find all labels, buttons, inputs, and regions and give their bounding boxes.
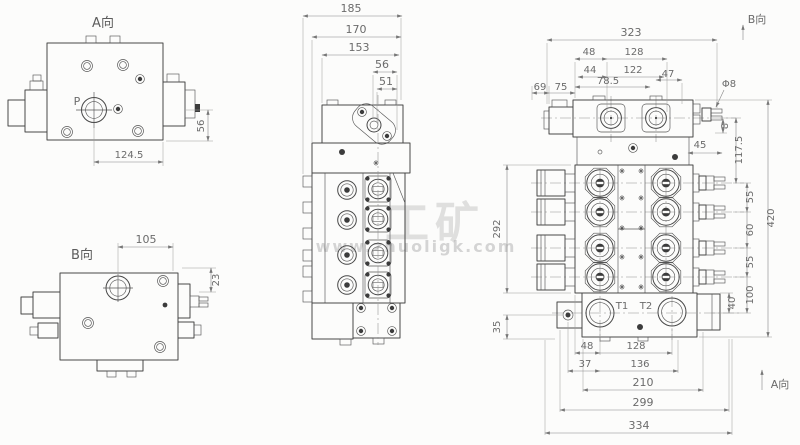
dim: 75 bbox=[555, 82, 568, 93]
dim: 292 bbox=[492, 219, 503, 238]
port-p-label: P bbox=[74, 95, 81, 108]
dim: 153 bbox=[349, 41, 370, 54]
dim: 128 bbox=[624, 47, 643, 58]
dim: 40 bbox=[727, 297, 738, 310]
dim: 420 bbox=[766, 208, 777, 227]
dim: 122 bbox=[623, 65, 642, 76]
dim: 78.5 bbox=[597, 76, 619, 87]
view-front: T1 T2 323 48 128 44 122 69 75 78.5 47 Φ8… bbox=[492, 12, 789, 435]
dim: 47 bbox=[662, 69, 675, 80]
dim: 56 bbox=[196, 120, 207, 133]
port-hole bbox=[114, 105, 123, 114]
dim: 100 bbox=[745, 285, 756, 304]
dim: 334 bbox=[629, 419, 650, 432]
dim: 170 bbox=[346, 23, 367, 36]
valve-drawing-page: 工矿 www.zhuoligk.com A向 P 124.5 56 B向 bbox=[0, 0, 800, 445]
dim: 60 bbox=[745, 224, 756, 237]
port-hole bbox=[82, 61, 93, 72]
watermark: 工矿 www.zhuoligk.com bbox=[316, 198, 517, 256]
dim: 210 bbox=[633, 376, 654, 389]
dim: 8 bbox=[720, 123, 731, 129]
view-b-label: B向 bbox=[71, 247, 93, 263]
dim: 299 bbox=[633, 396, 654, 409]
dim: 23 bbox=[211, 274, 222, 287]
view-a-body bbox=[47, 43, 163, 140]
dim: 105 bbox=[136, 233, 157, 246]
dim: 45 bbox=[694, 140, 707, 151]
dim: 48 bbox=[583, 47, 596, 58]
dim: 55 bbox=[745, 191, 756, 204]
dim: 48 bbox=[581, 341, 594, 352]
view-b: B向 105 23 bbox=[21, 233, 222, 377]
port-hole bbox=[133, 126, 144, 137]
dim: 128 bbox=[626, 341, 645, 352]
dim: 35 bbox=[492, 321, 503, 334]
port-hole bbox=[62, 127, 73, 138]
view-a-label: A向 bbox=[92, 15, 114, 31]
dim-diameter: Φ8 bbox=[722, 79, 736, 90]
dim: 69 bbox=[534, 82, 547, 93]
dim: 51 bbox=[379, 75, 393, 88]
dim: 185 bbox=[341, 2, 362, 15]
dim: 117.5 bbox=[734, 136, 745, 165]
drawing-canvas: 工矿 www.zhuoligk.com A向 P 124.5 56 B向 bbox=[0, 0, 800, 445]
port-t1-label: T1 bbox=[615, 301, 628, 312]
view-a: A向 P 124.5 56 bbox=[8, 15, 213, 166]
dim: 55 bbox=[745, 256, 756, 269]
view-direction-a: A向 bbox=[771, 377, 790, 391]
dim: 136 bbox=[630, 359, 649, 370]
dim: 37 bbox=[579, 359, 592, 370]
view-direction-b: B向 bbox=[748, 12, 767, 26]
dim: 56 bbox=[375, 58, 389, 71]
dim: 44 bbox=[584, 65, 597, 76]
dim: 323 bbox=[621, 26, 642, 39]
dim: 124.5 bbox=[115, 150, 144, 161]
port-hole bbox=[136, 75, 145, 84]
view-side: 185 170 153 56 51 bbox=[303, 2, 410, 345]
port-t2-label: T2 bbox=[639, 301, 652, 312]
port-hole bbox=[118, 60, 129, 71]
